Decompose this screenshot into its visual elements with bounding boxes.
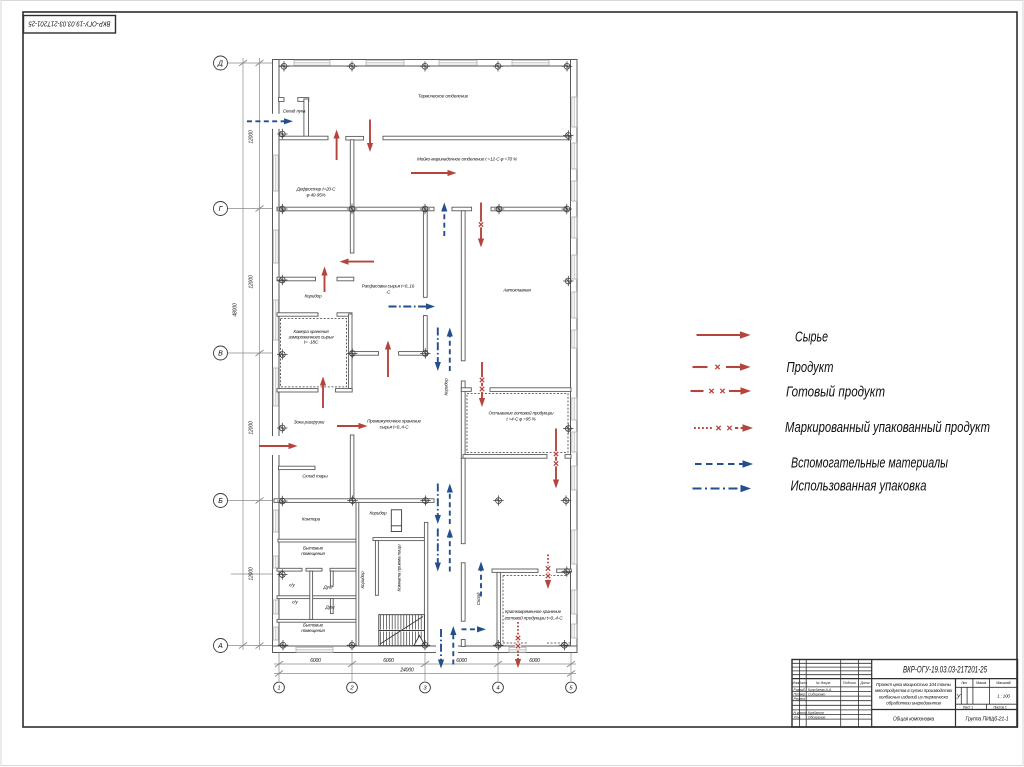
- svg-text:Д: Д: [217, 60, 223, 67]
- svg-text:Душ: Душ: [323, 585, 333, 590]
- svg-text:Лист 1: Лист 1: [963, 705, 973, 709]
- svg-text:В: В: [218, 350, 223, 357]
- svg-text:6000: 6000: [383, 658, 394, 664]
- svg-text:Маркированный упакованный прод: Маркированный упакованный продукт: [785, 419, 990, 436]
- svg-text:Склад тары: Склад тары: [302, 474, 328, 479]
- svg-text:Мойко-маринадочное отделение t: Мойко-маринадочное отделение t =12·С φ =…: [417, 156, 517, 162]
- svg-text:с/у: с/у: [292, 600, 298, 605]
- svg-text:Сырье: Сырье: [795, 329, 828, 346]
- svg-text:Группа ПИЩб-21-1: Группа ПИЩб-21-1: [966, 717, 1009, 723]
- svg-text:Кратковременное хранение: Кратковременное хранение: [505, 609, 562, 614]
- svg-text:Общая компоновка: Общая компоновка: [893, 717, 934, 723]
- svg-text:12000: 12000: [249, 567, 255, 581]
- svg-text:Бытовыепомещения: Бытовыепомещения: [301, 623, 325, 633]
- svg-text:Коридор: Коридор: [444, 378, 449, 396]
- svg-text:Использованная упаковка: Использованная упаковка: [791, 478, 927, 495]
- svg-text:Автоклавная: Автоклавная: [502, 288, 531, 293]
- svg-text:Душ: Душ: [325, 605, 335, 610]
- svg-text:12000: 12000: [249, 275, 255, 289]
- svg-text:Листов 1: Листов 1: [993, 705, 1007, 709]
- svg-text:Склад лука: Склад лука: [283, 109, 306, 114]
- svg-text:Вспомогательные материалы: Вспомогательные материалы: [791, 455, 948, 472]
- svg-text:с/у: с/у: [289, 583, 295, 588]
- svg-text:6000: 6000: [456, 658, 467, 664]
- svg-text:Разраб.: Разраб.: [794, 688, 806, 692]
- svg-text:Утв.: Утв.: [794, 715, 802, 719]
- svg-text:24000: 24000: [399, 668, 414, 674]
- svg-text:готовой продукции t=0..4·С: готовой продукции t=0..4·С: [505, 614, 564, 620]
- svg-text:48000: 48000: [233, 303, 239, 317]
- svg-text:Кульбаева А.А.: Кульбаева А.А.: [808, 688, 832, 692]
- svg-text:Коридор: Коридор: [305, 294, 323, 299]
- svg-text:1: 1: [277, 686, 280, 692]
- svg-text:1 : 100: 1 : 100: [997, 694, 1010, 699]
- svg-text:Реценз.: Реценз.: [794, 697, 806, 701]
- svg-text:Масса: Масса: [976, 681, 986, 685]
- svg-text:Б: Б: [218, 498, 223, 505]
- svg-text:ВКР-ОГУ-19.03.03-21Т201-25: ВКР-ОГУ-19.03.03-21Т201-25: [28, 19, 111, 28]
- svg-text:12000: 12000: [249, 130, 255, 144]
- svg-text:Подпись: Подпись: [843, 681, 857, 685]
- svg-text:Бытовыепомещения: Бытовыепомещения: [301, 546, 325, 556]
- svg-text:Лит.: Лит.: [961, 681, 967, 685]
- svg-text:12000: 12000: [249, 421, 255, 435]
- svg-text:ВКР-ОГУ-19.03.03-21Т201-25: ВКР-ОГУ-19.03.03-21Т201-25: [903, 665, 988, 675]
- svg-text:Продукт: Продукт: [787, 359, 834, 376]
- svg-text:А: А: [217, 643, 223, 650]
- svg-text:Комната приема пищи: Комната приема пищи: [397, 544, 402, 592]
- svg-text:Масштаб: Масштаб: [996, 681, 1010, 685]
- svg-text:Н.контр.: Н.контр.: [794, 711, 808, 715]
- svg-text:Лист: Лист: [797, 681, 807, 685]
- svg-text:4: 4: [496, 686, 499, 692]
- svg-text:6000: 6000: [310, 658, 321, 664]
- svg-text:№ докум.: № докум.: [816, 681, 831, 685]
- svg-text:Сидоренко: Сидоренко: [808, 692, 825, 696]
- svg-text:Коридор: Коридор: [360, 571, 365, 589]
- svg-text:Курбатов: Курбатов: [808, 711, 824, 715]
- svg-text:Провер.: Провер.: [794, 692, 807, 696]
- svg-text:Зона разгрузки: Зона разгрузки: [294, 420, 325, 425]
- svg-text:Готовый продукт: Готовый продукт: [786, 384, 885, 401]
- svg-text:6000: 6000: [529, 658, 540, 664]
- svg-text:Коридор: Коридор: [370, 511, 388, 516]
- svg-text:Термическое отделение: Термическое отделение: [418, 94, 469, 99]
- svg-text:Обозрение: Обозрение: [808, 715, 825, 719]
- svg-text:Контора: Контора: [302, 517, 321, 522]
- svg-text:Дата: Дата: [860, 681, 870, 685]
